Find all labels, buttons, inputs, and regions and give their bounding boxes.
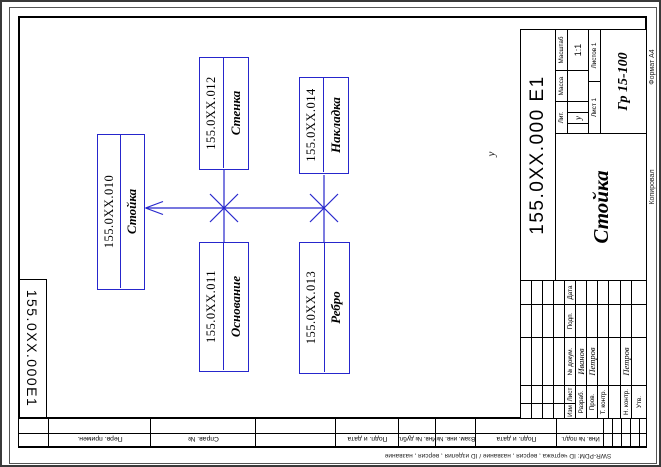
col-data: Дата: [565, 281, 575, 304]
part-box-stenka: 155.0XX.012 Стенка: [199, 57, 249, 170]
part-box-nakladka: 155.0XX.014 Накладка: [299, 77, 349, 174]
margin-cell-blank: [255, 419, 336, 446]
lit-label: Лит.: [556, 101, 567, 133]
sig-name: [632, 337, 646, 385]
sheet-number: Лист 1: [589, 81, 600, 133]
margin-cell-inv-dubl: Инв. № дубл.: [398, 419, 436, 446]
drawing-sheet: 155.0XX.010 Стойка 155.0XX.012 Стенка 15…: [0, 0, 661, 467]
copied-label: Копировал: [647, 152, 657, 222]
format-label: Формат А4: [647, 27, 657, 107]
mass-label: Масса: [556, 70, 567, 101]
sheet-count: Листов 1: [589, 30, 600, 81]
lit-value: у: [568, 112, 588, 123]
part-name: Стойка: [121, 135, 143, 288]
part-number: 155.0XX.010: [98, 135, 121, 288]
bottom-margin-strip: Перв. примен. Справ. № Подп. и дата Инв.…: [18, 419, 647, 448]
part-number: 155.0XX.013: [300, 243, 325, 372]
part-name: Основание: [224, 243, 247, 370]
part-number: 155.0XX.011: [200, 243, 224, 370]
sig-row-utv: Утв.: [632, 281, 646, 418]
part-box-stojka: 155.0XX.010 Стойка: [97, 134, 145, 290]
part-number: 155.0XX.012: [200, 58, 224, 168]
pdm-footer-stamp: SWR-PDM: ID чертежа , версия , название …: [352, 450, 644, 461]
sig-row-nkontr: Н. контр. Петров: [621, 281, 632, 418]
scale-value: 1:1: [568, 30, 588, 70]
document-designation: 155.0XX.000 Е1: [521, 30, 556, 280]
part-box-osnovanie: 155.0XX.011 Основание: [199, 242, 249, 372]
col-izm: Изм: [565, 403, 575, 418]
part-name: Стенка: [224, 58, 247, 168]
margin-cell-inv-podl: Инв. № подл.: [556, 419, 604, 446]
corner-designation-cell: 155.0XX.000Е1: [18, 279, 47, 419]
margin-cell-perv-primen: Перв. примен.: [48, 419, 151, 446]
change-table-header: Изм Лист № докум. Подп. Дата: [565, 281, 576, 418]
part-box-rebro: 155.0XX.013 Ребро: [299, 242, 350, 374]
col-podp: Подп.: [565, 304, 575, 337]
stray-mark: у: [485, 152, 497, 157]
sig-name: Иванов: [576, 337, 586, 385]
col-list: Лист: [565, 385, 575, 403]
group-name: Гр 15-100: [601, 30, 646, 133]
corner-designation-text: 155.0XX.000Е1: [19, 280, 45, 417]
margin-cell-sprav: Справ. №: [150, 419, 256, 446]
sig-name: Петров: [587, 337, 597, 385]
sig-name: [598, 337, 608, 385]
margin-cell-podp-data-2: Подп. и дата: [475, 419, 557, 446]
sig-row-razrab: Разраб. Иванов: [576, 281, 587, 418]
part-name: Ребро: [325, 243, 349, 372]
col-dokum: № докум.: [565, 337, 575, 385]
part-name: Накладка: [324, 78, 347, 172]
margin-cell-podp-data-1: Подп. и дата: [335, 419, 399, 446]
title-block: Изм Лист № докум. Подп. Дата Разраб. Ива…: [520, 29, 647, 419]
part-title: Стойка: [556, 133, 646, 280]
scale-label: Масштаб: [556, 30, 567, 70]
sig-name: Петров: [621, 337, 631, 385]
margin-cell-vzam-inv: Взам. инв. №: [435, 419, 476, 446]
part-number: 155.0XX.014: [300, 78, 324, 172]
sig-row-tkontr: Т. контр.: [598, 281, 609, 418]
title-block-signature-grid: Изм Лист № докум. Подп. Дата Разраб. Ива…: [521, 280, 646, 418]
mass-value: [568, 70, 588, 101]
sig-row-prov: Пров. Петров: [587, 281, 598, 418]
